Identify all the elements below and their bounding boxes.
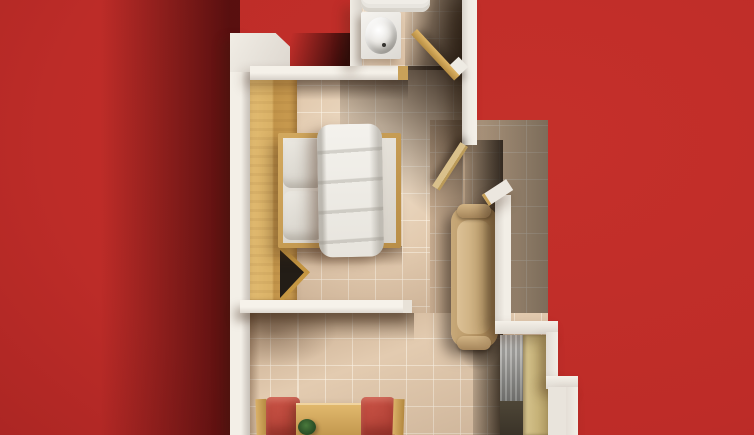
lounge-chair-armrest <box>457 204 491 218</box>
sink-basin <box>365 17 397 54</box>
gray-curtain <box>500 335 523 403</box>
tan-lounge-chair <box>451 206 498 348</box>
room-divider-wall <box>240 300 412 313</box>
bedroom-top-wall <box>250 66 408 80</box>
entry-door-panel <box>523 335 548 435</box>
chair-cushion <box>266 397 300 435</box>
floorplan-render <box>0 0 754 435</box>
red-armchair-right <box>361 397 404 435</box>
coffee-table <box>296 403 363 435</box>
chair-wood-arm <box>392 399 404 435</box>
chair-cushion <box>361 397 395 435</box>
red-armchair-left <box>256 397 300 435</box>
sink-drain <box>382 43 386 47</box>
wardrobe-open-doors <box>280 244 310 304</box>
stepped-wall-2 <box>546 332 558 382</box>
sink <box>361 12 401 59</box>
bathtub-edge <box>361 0 430 12</box>
double-bed <box>278 133 401 248</box>
pillow <box>283 191 323 240</box>
lounge-chair-cushion <box>457 220 491 334</box>
potted-plant <box>298 419 316 435</box>
outer-wall-right <box>495 195 511 325</box>
bathroom-right-wall <box>462 0 477 145</box>
lounge-chair-armrest <box>457 336 491 350</box>
duvet <box>317 123 384 257</box>
building-cast-shadow <box>100 0 240 435</box>
bottom-right-wall <box>548 387 566 435</box>
niche-cast-shadow <box>288 33 352 69</box>
outer-wall-left <box>230 33 250 435</box>
curtain-base <box>500 401 523 435</box>
stepped-wall-4 <box>564 387 578 435</box>
